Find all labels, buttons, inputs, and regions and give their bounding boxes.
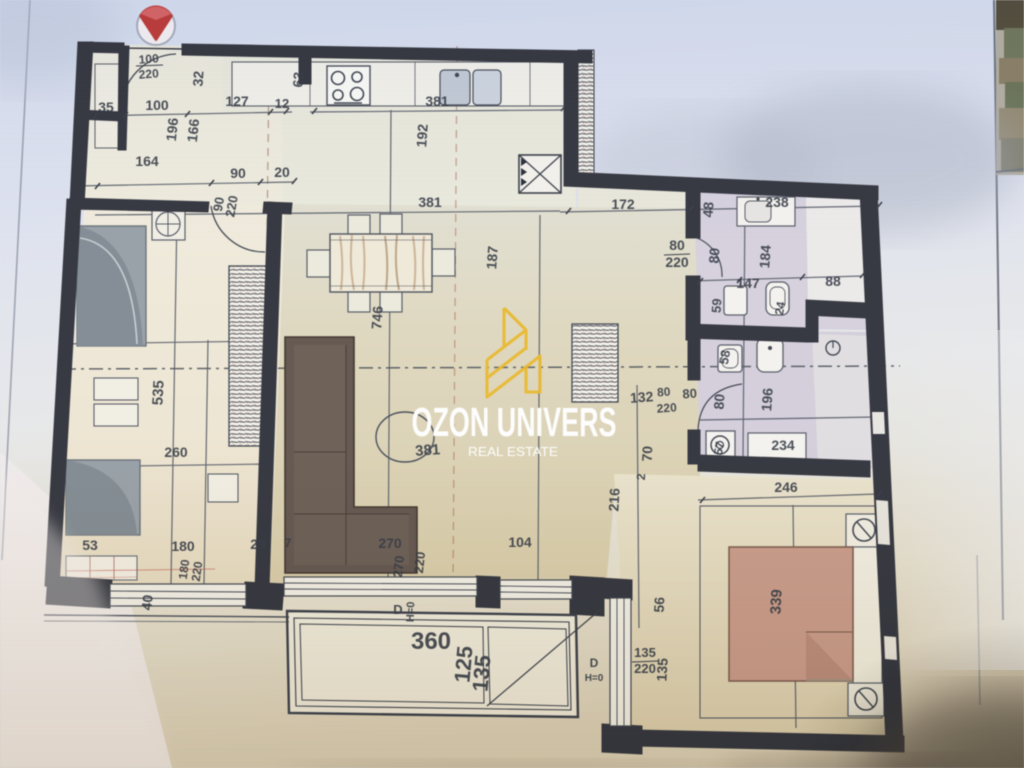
svg-text:127: 127	[225, 93, 249, 109]
svg-text:132: 132	[629, 388, 654, 406]
svg-text:35: 35	[98, 99, 114, 115]
svg-text:381: 381	[425, 93, 449, 109]
svg-text:29: 29	[250, 536, 266, 552]
svg-text:70: 70	[639, 445, 656, 462]
svg-text:270: 270	[378, 535, 402, 551]
svg-text:220: 220	[634, 661, 656, 676]
svg-text:88: 88	[825, 273, 841, 289]
svg-text:381: 381	[418, 194, 442, 210]
svg-text:184: 184	[756, 244, 774, 269]
svg-text:12: 12	[275, 96, 289, 111]
svg-text:746: 746	[368, 305, 386, 330]
svg-text:166: 166	[184, 118, 202, 143]
svg-text:80: 80	[669, 237, 685, 253]
svg-text:80: 80	[705, 247, 722, 264]
svg-text:234: 234	[771, 437, 795, 453]
svg-text:53: 53	[82, 537, 98, 553]
svg-text:59: 59	[709, 298, 725, 313]
svg-text:40: 40	[138, 594, 156, 611]
svg-text:63: 63	[289, 71, 306, 88]
svg-text:339: 339	[767, 589, 785, 615]
svg-text:246: 246	[774, 479, 798, 495]
svg-text:48: 48	[699, 201, 716, 218]
svg-text:135: 135	[467, 654, 495, 693]
svg-text:135: 135	[634, 645, 656, 660]
svg-text:216: 216	[605, 487, 622, 511]
svg-text:172: 172	[611, 196, 635, 212]
svg-text:220: 220	[665, 254, 689, 270]
svg-text:H=0: H=0	[585, 673, 604, 684]
svg-text:535: 535	[149, 380, 167, 406]
svg-text:192: 192	[413, 123, 431, 148]
svg-text:D: D	[393, 602, 402, 617]
svg-text:56: 56	[651, 596, 668, 613]
svg-text:90: 90	[230, 165, 246, 181]
svg-text:220: 220	[411, 551, 428, 574]
svg-text:32: 32	[189, 70, 206, 87]
svg-text:196: 196	[758, 387, 776, 412]
svg-text:OZON UNIVERS: OZON UNIVERS	[412, 399, 617, 445]
svg-text:20: 20	[274, 164, 290, 180]
svg-text:104: 104	[508, 534, 532, 550]
svg-text:58: 58	[716, 349, 733, 366]
svg-text:238: 238	[765, 194, 789, 210]
svg-text:196: 196	[163, 117, 181, 142]
svg-text:2: 2	[634, 473, 648, 481]
svg-text:220: 220	[656, 400, 677, 415]
svg-text:135: 135	[653, 657, 670, 681]
svg-text:57: 57	[711, 440, 727, 456]
svg-text:260: 260	[164, 444, 188, 460]
svg-text:147: 147	[736, 275, 760, 291]
svg-text:24: 24	[772, 300, 788, 316]
svg-text:80: 80	[682, 386, 697, 402]
svg-text:220: 220	[189, 560, 206, 582]
svg-text:164: 164	[135, 153, 159, 169]
svg-text:REAL ESTATE: REAL ESTATE	[468, 444, 558, 459]
svg-text:220: 220	[138, 66, 159, 81]
svg-text:360: 360	[411, 628, 451, 655]
svg-text:7: 7	[285, 536, 292, 550]
svg-text:D: D	[590, 656, 599, 670]
svg-text:180: 180	[171, 538, 195, 554]
svg-text:270: 270	[390, 555, 407, 578]
svg-text:80: 80	[710, 393, 727, 410]
svg-text:H=0: H=0	[405, 601, 418, 622]
svg-text:100: 100	[138, 51, 159, 66]
svg-text:100: 100	[145, 97, 169, 113]
svg-text:80: 80	[657, 385, 672, 400]
svg-text:187: 187	[483, 245, 501, 270]
